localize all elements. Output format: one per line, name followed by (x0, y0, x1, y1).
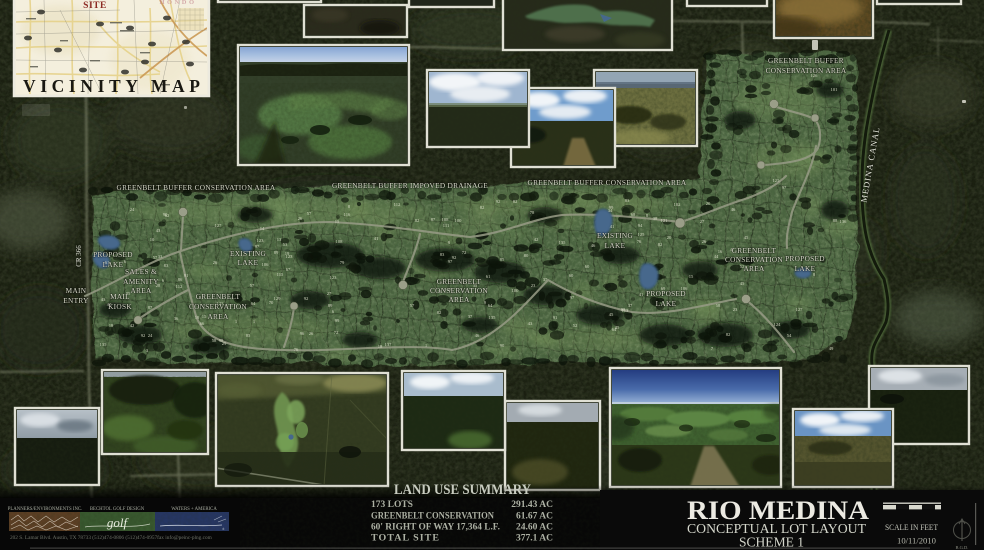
svg-text:43: 43 (528, 321, 533, 326)
svg-text:24: 24 (130, 207, 135, 212)
svg-text:121: 121 (661, 218, 669, 223)
svg-text:46: 46 (731, 207, 736, 212)
svg-text:76: 76 (294, 347, 299, 352)
svg-text:52: 52 (573, 323, 578, 328)
svg-text:78: 78 (530, 210, 535, 215)
svg-text:102: 102 (674, 202, 682, 207)
svg-text:82: 82 (437, 310, 442, 315)
svg-text:87: 87 (431, 217, 436, 222)
svg-text:92: 92 (496, 199, 501, 204)
svg-text:82: 82 (480, 205, 485, 210)
svg-text:MAIL: MAIL (110, 292, 130, 301)
svg-text:202 S. Lamar Blvd. Austin, T: 202 S. Lamar Blvd. Austin, TX 78733 (512… (10, 534, 213, 541)
svg-text:26: 26 (309, 331, 314, 336)
svg-text:GREENBELT: GREENBELT (196, 292, 241, 301)
svg-text:173 LOTS: 173 LOTS (371, 500, 413, 510)
svg-text:GREENBELT: GREENBELT (437, 277, 482, 286)
svg-text:127: 127 (215, 223, 223, 228)
svg-text:19: 19 (195, 315, 200, 320)
svg-text:72: 72 (462, 250, 467, 255)
svg-text:46: 46 (475, 333, 480, 338)
svg-text:112: 112 (176, 284, 183, 289)
svg-text:46: 46 (591, 243, 596, 248)
svg-text:100: 100 (455, 218, 463, 223)
svg-text:97: 97 (448, 259, 453, 264)
svg-text:86: 86 (178, 277, 183, 282)
svg-text:92: 92 (141, 333, 146, 338)
svg-text:ENTRY: ENTRY (63, 296, 89, 305)
svg-text:61: 61 (486, 274, 491, 279)
svg-text:PROPOSED: PROPOSED (785, 254, 825, 263)
svg-text:GREENBELT: GREENBELT (732, 246, 777, 255)
svg-text:36: 36 (174, 316, 179, 321)
svg-text:106: 106 (262, 262, 270, 267)
svg-text:76: 76 (637, 239, 642, 244)
svg-text:83: 83 (164, 263, 169, 268)
svg-text:54: 54 (787, 333, 792, 338)
svg-text:MAIN: MAIN (66, 286, 87, 295)
svg-text:10: 10 (150, 237, 155, 242)
svg-text:CONSERVATION: CONSERVATION (725, 255, 783, 264)
svg-text:27: 27 (700, 219, 705, 224)
svg-text:49: 49 (829, 346, 834, 351)
svg-text:16: 16 (718, 249, 723, 254)
svg-text:135: 135 (100, 342, 108, 347)
svg-text:45: 45 (744, 235, 749, 240)
svg-text:45: 45 (609, 312, 614, 317)
svg-text:94: 94 (638, 223, 643, 228)
svg-text:70: 70 (269, 300, 274, 305)
svg-text:14: 14 (260, 226, 265, 231)
svg-text:97: 97 (570, 295, 575, 300)
svg-text:PLANNERS/ENVIRONMENTS INC.: PLANNERS/ENVIRONMENTS INC. (8, 507, 83, 512)
svg-text:135: 135 (559, 240, 567, 245)
svg-text:123: 123 (257, 238, 265, 243)
svg-text:91: 91 (553, 315, 558, 320)
svg-text:TOTAL SITE: TOTAL SITE (371, 534, 440, 544)
svg-text:WATERS + AMERICA: WATERS + AMERICA (171, 507, 217, 512)
svg-text:60: 60 (585, 264, 590, 269)
svg-text:AREA: AREA (130, 286, 151, 295)
svg-text:89: 89 (274, 250, 279, 255)
svg-text:100: 100 (512, 288, 520, 293)
svg-text:82: 82 (513, 199, 518, 204)
svg-text:87: 87 (148, 305, 153, 310)
svg-text:129: 129 (274, 296, 282, 301)
svg-text:64: 64 (251, 301, 256, 306)
svg-text:SCHEME 1: SCHEME 1 (739, 535, 804, 550)
svg-text:CONSERVATION: CONSERVATION (189, 302, 247, 311)
svg-text:LAKE: LAKE (238, 258, 259, 267)
svg-text:23: 23 (531, 283, 536, 288)
svg-text:101: 101 (831, 87, 839, 92)
svg-text:SITE: SITE (83, 1, 107, 11)
svg-text:136: 136 (840, 219, 848, 224)
svg-text:92: 92 (452, 255, 457, 260)
svg-text:PROPOSED: PROPOSED (93, 250, 133, 259)
svg-text:19: 19 (285, 251, 290, 256)
svg-text:CONSERVATION AREA: CONSERVATION AREA (766, 66, 847, 75)
svg-text:15: 15 (689, 274, 694, 279)
svg-text:26: 26 (702, 239, 707, 244)
svg-text:44: 44 (714, 254, 719, 259)
svg-text:96: 96 (300, 331, 305, 336)
svg-text:58: 58 (212, 338, 217, 343)
svg-text:57: 57 (307, 211, 312, 216)
svg-text:18: 18 (378, 344, 383, 349)
svg-text:13: 13 (277, 237, 282, 242)
svg-text:42: 42 (534, 237, 539, 242)
svg-text:108: 108 (442, 217, 450, 222)
svg-text:golf: golf (107, 515, 130, 530)
svg-text:82: 82 (726, 332, 731, 337)
svg-text:LAKE: LAKE (605, 241, 626, 250)
svg-text:AMENITY: AMENITY (123, 277, 159, 286)
svg-text:29: 29 (222, 341, 227, 346)
svg-text:GREENBELT BUFFER CONSERVATION: GREENBELT BUFFER CONSERVATION AREA (528, 178, 687, 187)
svg-text:291.43 AC: 291.43 AC (511, 500, 553, 510)
svg-text:GREENBELT CONSERVATION: GREENBELT CONSERVATION (371, 512, 494, 522)
svg-text:92: 92 (304, 296, 309, 301)
svg-text:EXISTING: EXISTING (230, 249, 266, 258)
svg-text:82: 82 (658, 242, 663, 247)
svg-text:83: 83 (440, 252, 445, 257)
svg-text:43: 43 (156, 228, 161, 233)
svg-text:GREENBELT BUFFER: GREENBELT BUFFER (768, 56, 844, 65)
svg-text:27: 27 (327, 291, 332, 296)
svg-text:57: 57 (410, 303, 415, 308)
svg-text:85: 85 (500, 257, 505, 262)
svg-text:37: 37 (628, 303, 633, 308)
svg-text:108: 108 (336, 239, 344, 244)
svg-text:377.1 AC: 377.1 AC (516, 534, 553, 544)
svg-text:20: 20 (667, 235, 672, 240)
svg-text:88: 88 (833, 218, 838, 223)
svg-text:19: 19 (109, 323, 114, 328)
svg-text:10/11/2010: 10/11/2010 (897, 537, 936, 546)
svg-text:33: 33 (158, 254, 163, 259)
svg-text:60' RIGHT OF WAY 17,364 L.F.: 60' RIGHT OF WAY 17,364 L.F. (371, 523, 500, 533)
svg-text:HONDO: HONDO (159, 0, 196, 6)
svg-text:112: 112 (394, 202, 401, 207)
svg-text:LAKE: LAKE (656, 299, 677, 308)
svg-text:99: 99 (335, 318, 340, 323)
svg-text:66: 66 (200, 321, 205, 326)
svg-text:80: 80 (524, 253, 529, 258)
svg-text:41: 41 (374, 236, 379, 241)
svg-text:123: 123 (330, 275, 338, 280)
svg-text:B.G.D.: B.G.D. (956, 545, 969, 550)
svg-text:45: 45 (740, 281, 745, 286)
svg-text:111: 111 (443, 223, 450, 228)
svg-text:AREA: AREA (448, 295, 469, 304)
svg-text:61.67 AC: 61.67 AC (516, 512, 553, 522)
svg-text:125: 125 (773, 178, 781, 183)
svg-text:SCALE IN FEET: SCALE IN FEET (885, 523, 938, 532)
svg-text:60: 60 (569, 273, 574, 278)
svg-text:125: 125 (638, 232, 646, 237)
svg-text:135: 135 (489, 315, 497, 320)
svg-text:23: 23 (733, 307, 738, 312)
svg-text:41: 41 (610, 224, 615, 229)
svg-text:RIO MEDINA: RIO MEDINA (687, 496, 869, 525)
svg-text:45: 45 (615, 325, 620, 330)
svg-text:85: 85 (246, 333, 251, 338)
svg-text:90: 90 (500, 343, 505, 348)
svg-text:124: 124 (774, 322, 782, 327)
svg-text:BECHTOL GOLF DESIGN: BECHTOL GOLF DESIGN (90, 507, 145, 512)
svg-text:26: 26 (298, 216, 303, 221)
svg-text:82: 82 (415, 218, 420, 223)
svg-text:91: 91 (184, 273, 189, 278)
svg-text:68: 68 (631, 212, 636, 217)
svg-text:43: 43 (101, 297, 106, 302)
svg-text:CONSERVATION: CONSERVATION (430, 286, 488, 295)
svg-text:GREENBELT BUFFER IMPOVED DRAIN: GREENBELT BUFFER IMPOVED DRAINAGE (332, 181, 488, 190)
svg-text:PROPOSED: PROPOSED (646, 289, 686, 298)
svg-text:LAND USE SUMMARY: LAND USE SUMMARY (394, 482, 531, 498)
svg-text:72: 72 (334, 330, 339, 335)
svg-text:KIOSK: KIOSK (108, 302, 132, 311)
svg-text:24: 24 (148, 333, 153, 338)
svg-text:SALES &: SALES & (125, 267, 157, 276)
svg-text:67: 67 (286, 267, 291, 272)
svg-text:LAKE: LAKE (103, 260, 124, 269)
svg-text:20: 20 (706, 201, 711, 206)
svg-text:37: 37 (468, 314, 473, 319)
svg-text:90: 90 (163, 212, 168, 217)
svg-text:24.60 AC: 24.60 AC (516, 523, 553, 533)
svg-text:137: 137 (385, 342, 393, 347)
svg-text:37: 37 (543, 277, 548, 282)
svg-text:58: 58 (716, 303, 721, 308)
svg-text:64: 64 (488, 303, 493, 308)
svg-text:CR 366: CR 366 (75, 245, 83, 267)
svg-text:53: 53 (283, 242, 288, 247)
svg-text:LAKE: LAKE (795, 264, 816, 273)
svg-text:89: 89 (328, 303, 333, 308)
svg-text:AREA: AREA (743, 264, 764, 273)
svg-text:57: 57 (250, 283, 255, 288)
svg-text:115: 115 (277, 272, 284, 277)
svg-text:15: 15 (202, 314, 207, 319)
svg-text:34: 34 (608, 208, 613, 213)
svg-text:GREENBELT BUFFER CONSERVATION: GREENBELT BUFFER CONSERVATION AREA (117, 183, 276, 192)
svg-text:79: 79 (340, 260, 345, 265)
svg-text:42: 42 (130, 323, 135, 328)
svg-text:97: 97 (782, 185, 787, 190)
svg-text:26: 26 (213, 260, 218, 265)
svg-text:38: 38 (653, 216, 658, 221)
svg-text:127: 127 (796, 307, 804, 312)
svg-text:41: 41 (639, 292, 644, 297)
svg-text:113: 113 (622, 308, 629, 313)
svg-text:116: 116 (344, 212, 351, 217)
svg-text:83: 83 (625, 198, 630, 203)
svg-text:EXISTING: EXISTING (597, 231, 633, 240)
svg-text:AREA: AREA (207, 312, 228, 321)
svg-text:15: 15 (335, 219, 340, 224)
